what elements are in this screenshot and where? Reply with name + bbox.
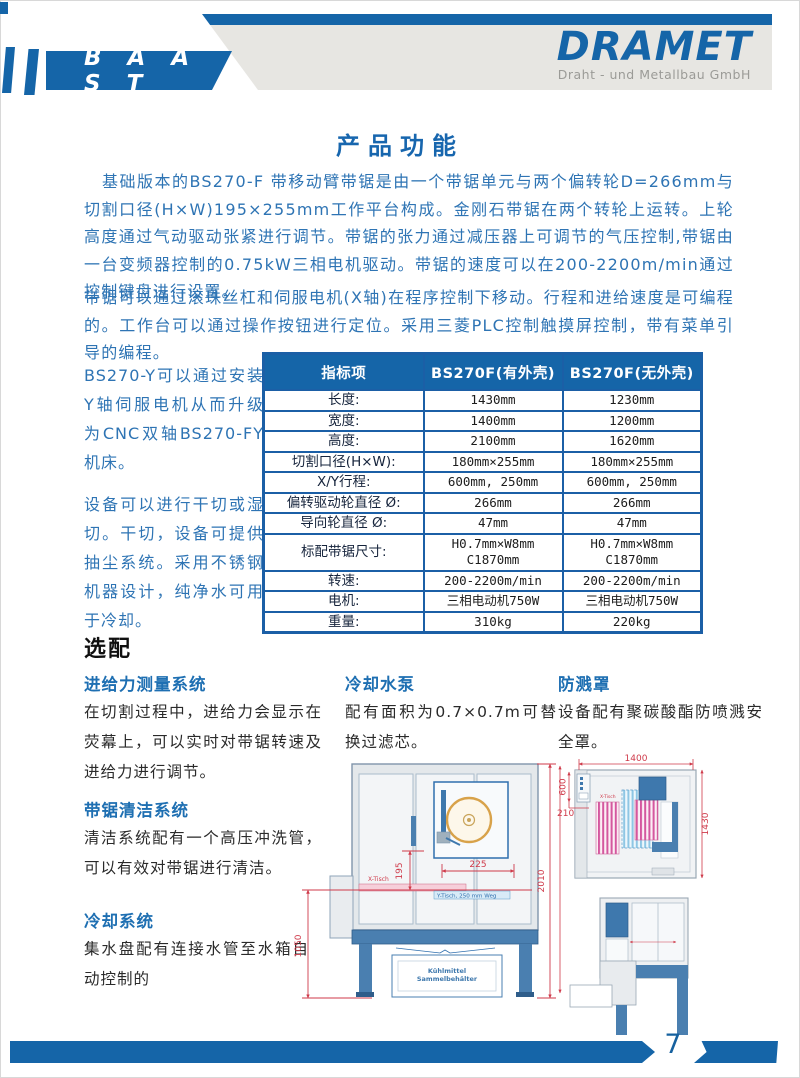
option-body-splash-guard: 设备配有聚碳酸酯防喷溅安全罩。: [558, 697, 763, 757]
page-title: 产品功能: [0, 126, 800, 161]
spec-value-with-housing: H0.7mm×W8mm C1870mm: [424, 534, 563, 571]
dim-1400: 1400: [625, 754, 648, 764]
dim-225: 225: [469, 860, 486, 870]
accent-bar-2: [24, 49, 39, 95]
spec-header-with-housing: BS270F(有外壳): [424, 354, 563, 391]
option-body-feed-force: 在切割过程中，进给力会显示在荧幕上，可以实时对带锯转速及进给力进行调节。: [84, 697, 322, 787]
side-column: BS270-Y可以通过安装Y轴伺服电机从而升级为CNC双轴BS270-FY机床。…: [84, 361, 264, 648]
options-heading: 选配: [84, 631, 132, 663]
spec-value-without-housing: 180mm×255mm: [563, 452, 702, 473]
spec-value-with-housing: 47mm: [424, 513, 563, 534]
top-view-x-table-label: X-Tisch: [600, 794, 616, 800]
spec-row: 宽度: 1400mm 1200mm: [264, 411, 702, 432]
brush-strip-1: [596, 802, 619, 854]
spec-header-row: 指标项 BS270F(有外壳) BS270F(无外壳): [264, 354, 702, 391]
label-coolant-2: Sammelbehälter: [417, 975, 478, 983]
spec-row: 标配带锯尺寸: H0.7mm×W8mm C1870mm H0.7mm×W8mm …: [264, 534, 702, 571]
spec-value-with-housing: 200-2200m/min: [424, 571, 563, 592]
spec-label: 偏转驱动轮直径 Ø:: [264, 493, 424, 514]
spec-value-without-housing: 三相电动机750W: [563, 591, 702, 612]
dim-2010: 2010: [537, 869, 547, 892]
spec-label: 长度:: [264, 390, 424, 411]
front-view-drawing: 195 225 1050 2010 X-Tisch Y-Tisch, 250 m…: [292, 750, 564, 1038]
spec-table: 指标项 BS270F(有外壳) BS270F(无外壳) 长度: 1430mm 1…: [262, 352, 703, 634]
baast-wordmark: B A A S T: [84, 45, 232, 97]
label-y-table: Y-Tisch, 250 mm Weg: [436, 894, 497, 900]
spec-value-with-housing: 1430mm: [424, 390, 563, 411]
option-title-cooling-system: 冷却系统: [84, 908, 154, 932]
option-body-cooling-system: 集水盘配有连接水管至水箱自动控制的: [84, 934, 309, 994]
spec-value-with-housing: 三相电动机750W: [424, 591, 563, 612]
dim-210: 210: [557, 809, 574, 819]
brush-strip-2: [635, 800, 658, 840]
accent-bar-1: [2, 47, 15, 93]
label-coolant-1: Kühlmittel: [428, 967, 466, 975]
spec-value-without-housing: 1230mm: [563, 390, 702, 411]
spec-row: 长度: 1430mm 1230mm: [264, 390, 702, 411]
spec-value-without-housing: 47mm: [563, 513, 702, 534]
spec-value-with-housing: 1400mm: [424, 411, 563, 432]
dim-600: 600: [559, 778, 569, 795]
spec-row: 偏转驱动轮直径 Ø: 266mm 266mm: [264, 493, 702, 514]
spec-row: 重量: 310kg 220kg: [264, 612, 702, 633]
header-banner: DRAMET Draht - und Metallbau GmbH: [150, 14, 772, 90]
label-x-table: X-Tisch: [368, 876, 389, 883]
top-side-view-drawing: X-Tisch 1400 600 210 1430: [556, 750, 728, 1046]
spec-value-with-housing: 266mm: [424, 493, 563, 514]
page: DRAMET Draht - und Metallbau GmbH B A A …: [0, 0, 800, 1078]
spec-row: 转速: 200-2200m/min 200-2200m/min: [264, 571, 702, 592]
spec-value-without-housing: 600mm, 250mm: [563, 472, 702, 493]
spec-label: 转速:: [264, 571, 424, 592]
spec-label: 切割口径(H×W):: [264, 452, 424, 473]
spec-value-without-housing: 220kg: [563, 612, 702, 633]
spec-row: 电机: 三相电动机750W 三相电动机750W: [264, 591, 702, 612]
footer-ribbon: [694, 1041, 778, 1063]
corner-accent: [0, 2, 8, 14]
side-paragraph-1: BS270-Y可以通过安装Y轴伺服电机从而升级为CNC双轴BS270-FY机床。: [84, 361, 264, 477]
dramet-wordmark: DRAMET: [557, 27, 752, 67]
spec-row: X/Y行程: 600mm, 250mm 600mm, 250mm: [264, 472, 702, 493]
spec-value-with-housing: 180mm×255mm: [424, 452, 563, 473]
footer-arrow-band: [10, 1041, 655, 1063]
side-paragraph-2: 设备可以进行干切或湿切。干切，设备可提供抽尘系统。采用不锈钢机器设计，纯净水可用…: [84, 490, 264, 635]
spec-row: 切割口径(H×W): 180mm×255mm 180mm×255mm: [264, 452, 702, 473]
option-title-feed-force: 进给力测量系统: [84, 671, 207, 695]
spec-row: 导向轮直径 Ø: 47mm 47mm: [264, 513, 702, 534]
spec-value-without-housing: 200-2200m/min: [563, 571, 702, 592]
spec-label: 标配带锯尺寸:: [264, 534, 424, 571]
spec-header-without-housing: BS270F(无外壳): [563, 354, 702, 391]
dramet-subtitle: Draht - und Metallbau GmbH: [557, 67, 752, 82]
dramet-logo: DRAMET Draht - und Metallbau GmbH: [557, 27, 752, 82]
spec-header-metric: 指标项: [264, 354, 424, 391]
option-title-splash-guard: 防溅罩: [558, 671, 611, 695]
baast-logo: B A A S T: [46, 51, 232, 90]
spec-label: 宽度:: [264, 411, 424, 432]
option-title-cleaning: 带锯清洁系统: [84, 797, 189, 821]
spec-label: 电机:: [264, 591, 424, 612]
spec-value-with-housing: 2100mm: [424, 431, 563, 452]
spec-value-with-housing: 600mm, 250mm: [424, 472, 563, 493]
spec-value-without-housing: 1620mm: [563, 431, 702, 452]
dim-195: 195: [395, 862, 405, 879]
spec-value-without-housing: 1200mm: [563, 411, 702, 432]
dim-1050: 1050: [294, 934, 304, 957]
spec-value-without-housing: H0.7mm×W8mm C1870mm: [563, 534, 702, 571]
spec-label: X/Y行程:: [264, 472, 424, 493]
spec-value-with-housing: 310kg: [424, 612, 563, 633]
option-body-cleaning: 清洁系统配有一个高压冲洗管，可以有效对带锯进行清洁。: [84, 823, 322, 883]
spec-label: 重量:: [264, 612, 424, 633]
page-number: 7: [655, 1029, 691, 1060]
dim-1430: 1430: [701, 812, 711, 835]
spec-value-without-housing: 266mm: [563, 493, 702, 514]
spec-label: 导向轮直径 Ø:: [264, 513, 424, 534]
spec-row: 高度: 2100mm 1620mm: [264, 431, 702, 452]
spec-label: 高度:: [264, 431, 424, 452]
option-title-cooling-pump: 冷却水泵: [345, 671, 415, 695]
option-body-cooling-pump: 配有面积为0.7×0.7m可替换过滤芯。: [345, 697, 557, 757]
